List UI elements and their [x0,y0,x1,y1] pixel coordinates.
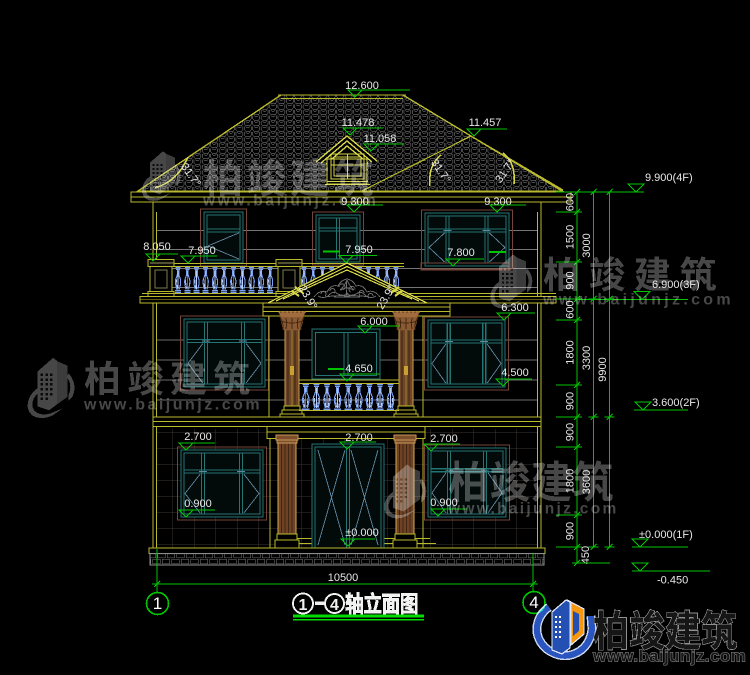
svg-text:4: 4 [529,593,538,612]
svg-text:9900: 9900 [597,357,609,381]
svg-text:www.baijunjz.com: www.baijunjz.com [447,501,619,518]
svg-text:1: 1 [299,597,308,614]
svg-text:±0.000: ±0.000 [345,527,379,539]
svg-text:7.950: 7.950 [188,245,216,257]
svg-text:www.baijunjz.com: www.baijunjz.com [542,292,734,309]
svg-text:4: 4 [330,597,339,614]
svg-text:1800: 1800 [565,340,577,364]
svg-text:www.baijunjz.com: www.baijunjz.com [83,397,262,414]
svg-text:3300: 3300 [581,346,593,370]
svg-text:4.650: 4.650 [345,363,373,375]
svg-text:7.950: 7.950 [345,244,373,256]
svg-text:0.900: 0.900 [184,498,212,510]
svg-text:11.058: 11.058 [364,133,397,145]
svg-text:11.478: 11.478 [342,117,375,129]
svg-text:900: 900 [565,392,577,410]
svg-text:www.baijunjz.com: www.baijunjz.com [592,647,746,666]
svg-text:3.600(2F): 3.600(2F) [652,397,700,409]
svg-text:8.050: 8.050 [143,241,171,253]
svg-text:600: 600 [565,193,577,211]
svg-text:1: 1 [153,594,162,613]
svg-text:11.457: 11.457 [469,117,502,129]
svg-text:10500: 10500 [328,572,359,584]
svg-text:www.baijunjz.com: www.baijunjz.com [202,193,378,210]
svg-text:450: 450 [580,546,592,564]
svg-text:900: 900 [565,522,577,540]
svg-text:-0.450: -0.450 [657,575,688,587]
svg-text:4.500: 4.500 [501,367,529,379]
svg-text:9.900(4F): 9.900(4F) [645,172,693,184]
svg-text:2.700: 2.700 [430,433,458,445]
svg-text:1500: 1500 [565,225,577,249]
svg-text:9.300: 9.300 [484,196,512,208]
svg-text:7.800: 7.800 [447,247,475,259]
svg-text:2.700: 2.700 [184,431,212,443]
svg-text:900: 900 [565,423,577,441]
svg-text:3000: 3000 [581,233,593,257]
